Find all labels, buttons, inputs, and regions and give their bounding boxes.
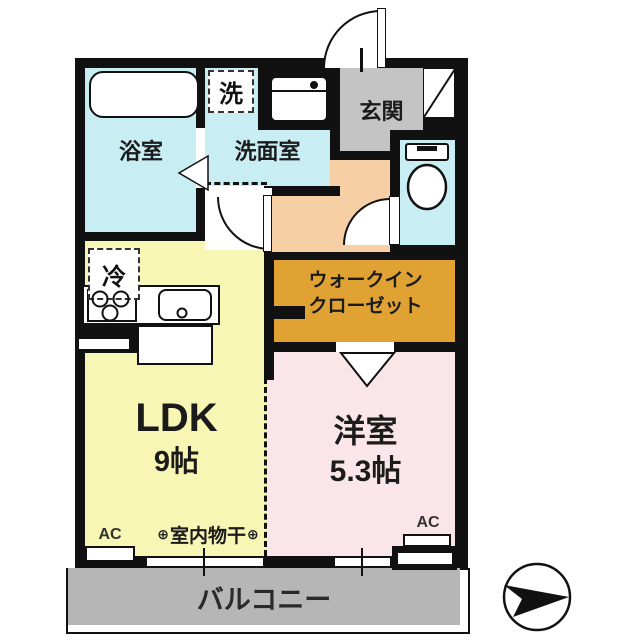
western-room-size-label: 5.3帖 [274,450,457,486]
wic-label-line2: クローゼット [274,292,457,316]
entrance-label: 玄関 [340,96,423,124]
kitchen-sink-drain-icon [178,309,187,318]
washbasin-icon [271,77,327,121]
shoe-cabinet-diagonal-icon [424,69,455,117]
ac-right-label: AC [405,514,451,532]
drying-hook-icon: ⊕ [157,526,169,543]
plan-icons [0,0,640,640]
washbasin-faucet-icon [311,82,317,88]
toilet-lid-icon [417,146,437,151]
toilet-bowl-icon [408,165,446,209]
ldk-size-label: 9帖 [85,442,268,476]
indoor-drying-text: 室内物干 [170,521,246,548]
floor-plan: バルコニー 冷 洗 [0,0,640,640]
stove-burner-icon [114,292,129,307]
indoor-drying-label: ⊕ 室内物干 ⊕ [128,523,288,545]
stove-burner-icon [93,292,108,307]
drying-hook-icon: ⊕ [247,526,259,543]
western-room-door-triangle-icon [341,353,394,386]
ldk-label: LDK [85,396,268,440]
western-room-label: 洋室 [274,410,457,448]
washroom-label: 洗面室 [205,135,330,165]
wic-label-line1: ウォークイン [274,266,457,290]
bathroom-label: 浴室 [85,135,197,165]
stove-burner-icon [103,306,118,321]
